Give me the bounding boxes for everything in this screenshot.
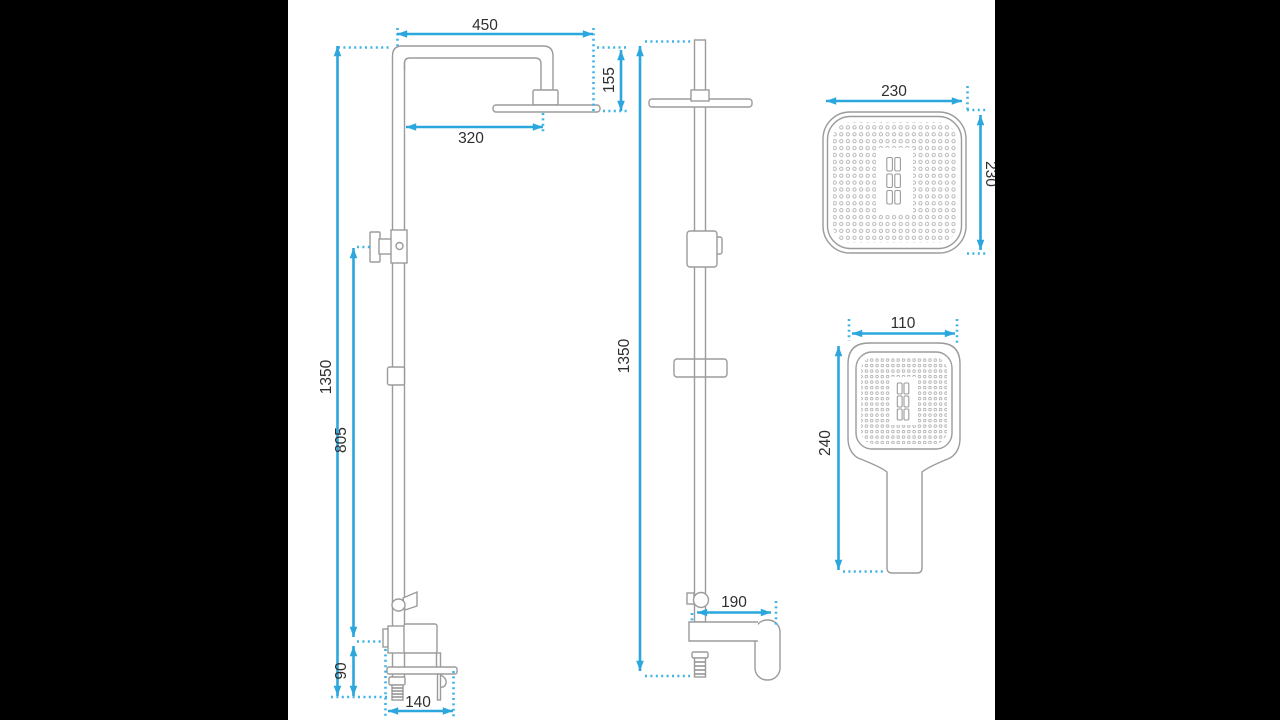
head-connector-nut [533,90,558,105]
riser-pipe-side [695,40,706,622]
center-slot-nozzle [904,396,909,407]
inlet-flange-side [692,652,708,658]
inlet-flange [389,677,405,685]
shower-arm [393,46,554,90]
head-dim-width-label: 230 [881,83,907,100]
slider-holder-block [391,230,407,263]
center-slot-nozzle [897,396,902,407]
technical-drawing: 450 320 155 1350 805 90 140 [288,0,995,720]
slider-block-side [687,231,717,267]
center-slot-nozzle [887,191,893,205]
side-dim-spout-reach-label: 190 [721,594,747,611]
mixer-bracket-upper [437,653,441,668]
front-dim-arm-width-label: 450 [472,17,498,34]
overhead-shower-edge [493,105,600,112]
screenshot-stage: 450 320 155 1350 805 90 140 [0,0,1280,720]
center-slot-nozzle [887,174,893,188]
pipe-collar [388,367,405,385]
front-dim-total-height-label: 1350 [318,359,335,394]
center-slot-nozzle [897,409,902,420]
center-slot-nozzle [895,174,901,188]
shower-head-detail: 230 230 [823,83,995,254]
shower-arm [405,58,542,90]
mixer-body [388,626,405,653]
center-slot-nozzle [904,383,909,394]
inlet-thread [392,685,403,700]
wall-shelf-plate [387,667,457,674]
front-dim-head-offset-label: 320 [458,130,484,147]
mixer-lever-side [755,620,780,680]
center-slot-nozzle [895,191,901,205]
hand-shower-detail: 110 240 [817,315,960,573]
soap-dish [674,359,727,377]
front-dim-head-drop-label: 155 [601,67,618,93]
side-view: 1350 190 [616,40,780,680]
handshower-dim-width-label: 110 [891,315,916,332]
letterbox-right [995,0,1280,720]
side-dim-total-height-label: 1350 [616,338,633,373]
front-view: 450 320 155 1350 805 90 140 [318,17,628,717]
front-dim-inlet-drop-label: 90 [333,662,350,680]
front-dim-inlet-width-label: 140 [405,694,431,711]
drawing-canvas: 450 320 155 1350 805 90 140 [288,0,995,720]
center-slot-nozzle [895,158,901,172]
center-slot-nozzle [897,383,902,394]
letterbox-left [0,0,288,720]
spout-body-side [689,622,758,641]
head-connector-nut-side [691,90,709,101]
head-dim-height-label: 230 [982,161,995,187]
mixer-bracket-lower [438,674,441,700]
front-dim-slider-height-label: 805 [333,427,350,453]
handshower-holder-ring [392,599,405,611]
handshower-dim-length-label: 240 [817,430,834,456]
center-slot-nozzle [887,158,893,172]
center-slot-nozzle [904,409,909,420]
slider-holder-stem [379,239,392,254]
mixer-cartridge [404,624,437,653]
diverter-knob [694,593,709,608]
